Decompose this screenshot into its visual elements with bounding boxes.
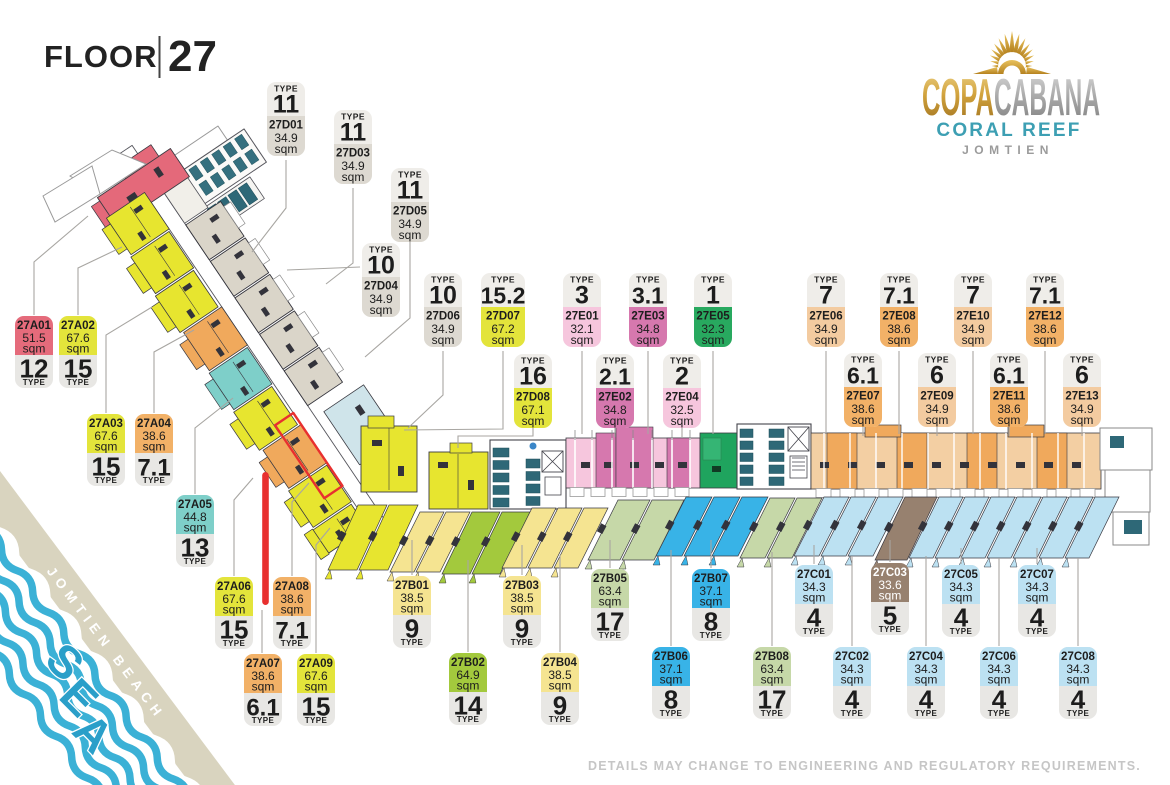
svg-text:7: 7 — [819, 282, 833, 310]
svg-text:sqm: sqm — [926, 413, 949, 427]
svg-text:27E03: 27E03 — [631, 311, 664, 323]
svg-text:27E01: 27E01 — [565, 311, 599, 323]
svg-text:3: 3 — [575, 282, 589, 310]
svg-text:10: 10 — [367, 252, 395, 280]
svg-text:sqm: sqm — [281, 603, 304, 617]
svg-text:27E12: 27E12 — [1028, 311, 1061, 323]
svg-text:6.1: 6.1 — [993, 363, 1025, 389]
svg-text:27E13: 27E13 — [1065, 391, 1098, 403]
svg-text:sqm: sqm — [1071, 413, 1094, 427]
svg-text:sqm: sqm — [275, 142, 298, 156]
svg-text:11: 11 — [273, 91, 300, 119]
svg-text:TYPE: TYPE — [879, 625, 902, 634]
svg-text:15.2: 15.2 — [481, 283, 526, 309]
svg-text:TYPE: TYPE — [252, 716, 275, 725]
svg-text:7: 7 — [966, 282, 980, 310]
svg-text:6: 6 — [1075, 362, 1089, 390]
svg-text:sqm: sqm — [702, 333, 725, 347]
svg-text:TYPE: TYPE — [761, 709, 784, 718]
svg-text:27D04: 27D04 — [364, 281, 398, 293]
svg-text:sqm: sqm — [888, 333, 911, 347]
svg-text:sqm: sqm — [143, 440, 166, 454]
svg-text:TYPE: TYPE — [95, 476, 118, 485]
svg-text:TYPE: TYPE — [803, 627, 826, 636]
svg-text:COPA: COPA — [922, 69, 994, 127]
svg-text:27E05: 27E05 — [696, 311, 730, 323]
svg-text:sqm: sqm — [252, 680, 275, 694]
svg-text:TYPE: TYPE — [915, 709, 938, 718]
svg-text:27D07: 27D07 — [486, 311, 520, 323]
svg-text:TYPE: TYPE — [23, 378, 46, 387]
svg-text:TYPE: TYPE — [841, 709, 864, 718]
svg-text:TYPE: TYPE — [599, 631, 622, 640]
svg-text:7.1: 7.1 — [1029, 283, 1061, 309]
svg-text:27E10: 27E10 — [956, 311, 989, 323]
svg-text:27D05: 27D05 — [393, 206, 427, 218]
svg-text:sqm: sqm — [962, 333, 985, 347]
svg-text:TYPE: TYPE — [457, 715, 480, 724]
svg-text:27E11: 27E11 — [993, 391, 1026, 403]
svg-text:TYPE: TYPE — [143, 476, 166, 485]
svg-text:2: 2 — [675, 363, 689, 391]
svg-text:TYPE: TYPE — [281, 639, 304, 648]
svg-text:TYPE: TYPE — [988, 709, 1011, 718]
svg-text:sqm: sqm — [571, 333, 594, 347]
svg-text:TYPE: TYPE — [950, 627, 973, 636]
svg-text:JOMTIEN: JOMTIEN — [962, 143, 1054, 157]
svg-text:TYPE: TYPE — [401, 638, 424, 647]
svg-text:6.1: 6.1 — [847, 363, 879, 389]
svg-text:11: 11 — [340, 119, 367, 147]
svg-text:sqm: sqm — [1034, 333, 1057, 347]
svg-text:sqm: sqm — [370, 303, 393, 317]
svg-text:27D06: 27D06 — [426, 311, 460, 323]
svg-text:27D08: 27D08 — [516, 392, 550, 404]
svg-text:sqm: sqm — [604, 414, 627, 428]
svg-text:TYPE: TYPE — [1026, 627, 1049, 636]
svg-text:sqm: sqm — [852, 413, 875, 427]
svg-text:TYPE: TYPE — [1067, 709, 1090, 718]
svg-text:TYPE: TYPE — [67, 378, 90, 387]
svg-text:sqm: sqm — [998, 413, 1021, 427]
svg-text:6: 6 — [930, 362, 944, 390]
svg-text:27E02: 27E02 — [598, 392, 631, 404]
svg-text:7.1: 7.1 — [883, 283, 915, 309]
svg-text:sqm: sqm — [492, 333, 515, 347]
svg-text:sqm: sqm — [522, 414, 545, 428]
svg-text:3.1: 3.1 — [632, 283, 664, 309]
svg-text:11: 11 — [397, 177, 424, 205]
svg-text:sqm: sqm — [342, 170, 365, 184]
svg-text:TYPE: TYPE — [660, 709, 683, 718]
svg-text:sqm: sqm — [671, 414, 694, 428]
svg-text:TYPE: TYPE — [305, 716, 328, 725]
svg-text:27: 27 — [168, 32, 217, 81]
svg-text:27D01: 27D01 — [269, 120, 303, 132]
svg-text:27E09: 27E09 — [920, 391, 953, 403]
svg-text:TYPE: TYPE — [184, 557, 207, 566]
svg-text:10: 10 — [429, 282, 457, 310]
svg-text:CORAL REEF: CORAL REEF — [936, 120, 1081, 141]
svg-text:27E04: 27E04 — [665, 392, 699, 404]
svg-text:27E08: 27E08 — [882, 311, 916, 323]
svg-text:CABANA: CABANA — [994, 69, 1100, 127]
svg-text:sqm: sqm — [399, 228, 422, 242]
svg-text:DETAILS MAY CHANGE TO ENGINEER: DETAILS MAY CHANGE TO ENGINEERING AND RE… — [588, 759, 1141, 773]
svg-text:sqm: sqm — [815, 333, 838, 347]
svg-text:sqm: sqm — [637, 333, 660, 347]
svg-text:27D03: 27D03 — [336, 148, 370, 160]
svg-text:1: 1 — [706, 282, 720, 310]
svg-text:TYPE: TYPE — [223, 639, 246, 648]
svg-text:2.1: 2.1 — [599, 364, 631, 390]
svg-text:TYPE: TYPE — [549, 715, 572, 724]
svg-text:FLOOR: FLOOR — [44, 39, 158, 74]
svg-text:16: 16 — [519, 363, 547, 391]
svg-text:TYPE: TYPE — [511, 638, 534, 647]
svg-text:27E07: 27E07 — [846, 391, 879, 403]
svg-text:27E06: 27E06 — [809, 311, 842, 323]
svg-text:sqm: sqm — [432, 333, 455, 347]
svg-text:TYPE: TYPE — [700, 631, 723, 640]
